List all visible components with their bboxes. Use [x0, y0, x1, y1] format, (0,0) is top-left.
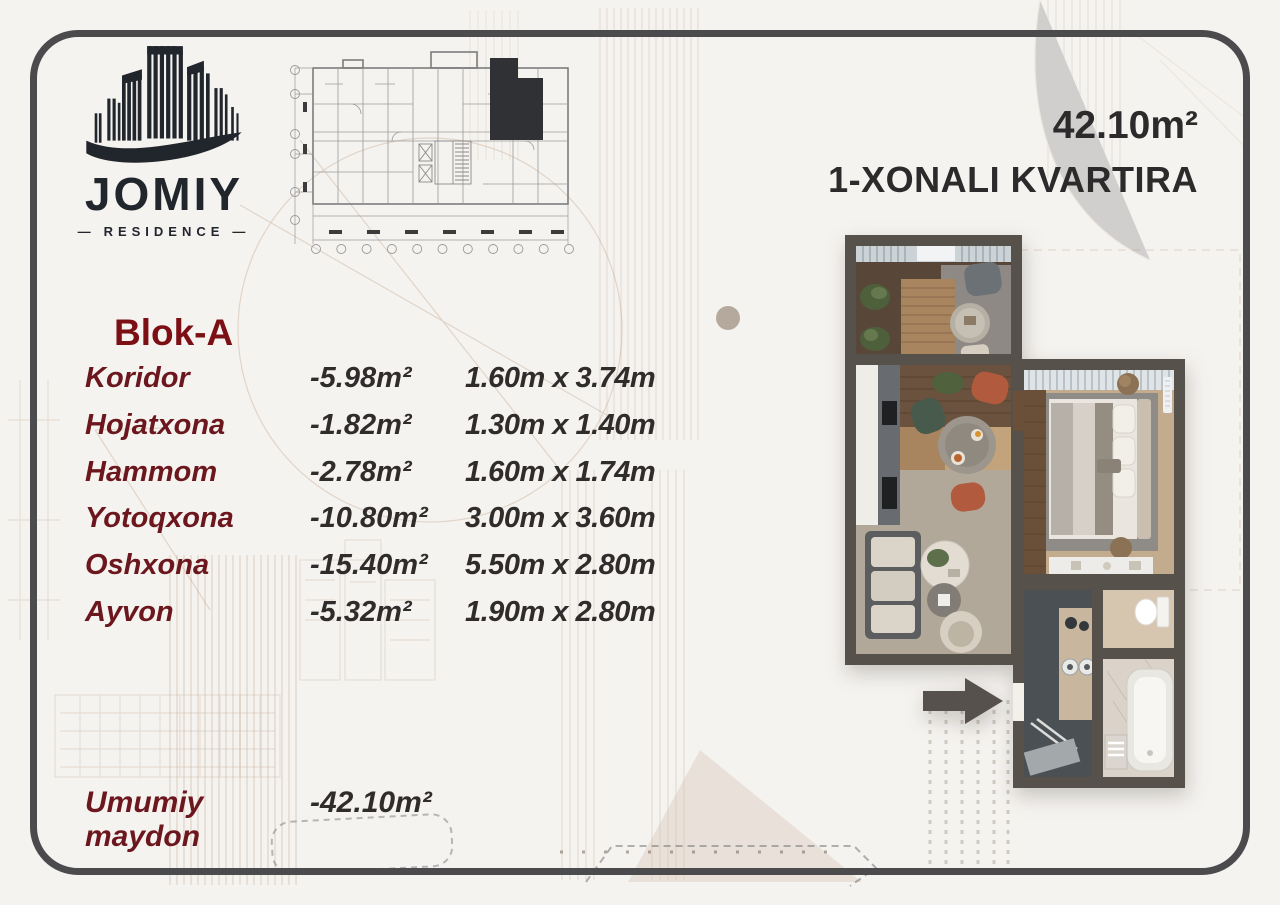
- bath-section: [1013, 585, 1180, 783]
- room-area: -5.32m²: [310, 596, 465, 629]
- room-name: Koridor: [85, 362, 310, 395]
- total-value: -42.10m²: [310, 786, 432, 820]
- table-row: Koridor -5.98m² 1.60m x 3.74m: [85, 362, 655, 409]
- pillow: [1113, 469, 1135, 497]
- bedroom-stool: [1110, 537, 1132, 559]
- bedroom-curtains: [1029, 370, 1169, 390]
- balcony-room: [851, 241, 1018, 363]
- highlighted-unit: [490, 58, 543, 140]
- bedroom-ac-unit: [1163, 377, 1172, 413]
- entrance-door-opening: [1013, 683, 1024, 721]
- brand-name: JOMIY: [56, 171, 272, 217]
- header-block: 42.10m² 1-XONALI KVARTIRA: [828, 106, 1198, 198]
- room-area: -5.98m²: [310, 362, 465, 395]
- rooms-table: Koridor -5.98m² 1.60m x 3.74m Hojatxona …: [85, 362, 655, 643]
- kitchen-cabinet: [856, 365, 878, 525]
- total-row: Umumiy maydon -42.10m²: [85, 786, 432, 854]
- coffee-table-plant: [927, 549, 949, 567]
- table-row: Yotoqxona -10.80m² 3.00m x 3.60m: [85, 502, 655, 549]
- room-dimensions: 1.90m x 2.80m: [465, 596, 655, 629]
- kitchen-living-room: [851, 354, 1017, 660]
- building-floorplan-sketch: [283, 44, 603, 261]
- balcony-skylight: [917, 246, 955, 261]
- kitchen-appliance: [882, 477, 897, 509]
- block-label: Blok-A: [114, 312, 233, 354]
- room-dimensions: 1.60m x 3.74m: [465, 362, 655, 395]
- room-name: Hammom: [85, 456, 310, 489]
- brand-logo: JOMIY — RESIDENCE —: [56, 44, 272, 239]
- tagline-dash-left: —: [78, 224, 96, 239]
- pillow: [1113, 405, 1135, 433]
- building-skyline-icon: [80, 44, 248, 170]
- table-row: Ayvon -5.32m² 1.90m x 2.80m: [85, 596, 655, 643]
- room-name: Yotoqxona: [85, 502, 310, 535]
- room-dimensions: 5.50m x 2.80m: [465, 549, 655, 582]
- room-name: Ayvon: [85, 596, 310, 629]
- apartment-area: 42.10m²: [828, 106, 1198, 145]
- room-dimensions: 3.00m x 3.60m: [465, 502, 655, 535]
- room-area: -10.80m²: [310, 502, 465, 535]
- balcony-chair: [963, 261, 1003, 298]
- room-dimensions: 1.60m x 1.74m: [465, 456, 655, 489]
- toilet-tank: [1157, 597, 1169, 627]
- bath-side-table: [1105, 735, 1127, 769]
- brand-tagline: — RESIDENCE —: [56, 224, 272, 239]
- tagline-dash-right: —: [232, 224, 250, 239]
- total-label: Umumiy maydon: [85, 786, 310, 854]
- table-row: Hojatxona -1.82m² 1.30m x 1.40m: [85, 409, 655, 456]
- apartment-title: 1-XONALI KVARTIRA: [828, 162, 1198, 198]
- room-area: -15.40m²: [310, 549, 465, 582]
- tagline-text: RESIDENCE: [104, 224, 225, 239]
- toilet: [1135, 599, 1157, 625]
- entrance-arrow-icon: [923, 678, 1003, 724]
- room-name: Hojatxona: [85, 409, 310, 442]
- table-row: Oshxona -15.40m² 5.50m x 2.80m: [85, 549, 655, 596]
- table-row: Hammom -2.78m² 1.60m x 1.74m: [85, 456, 655, 503]
- flyer-canvas: JOMIY — RESIDENCE —: [0, 0, 1280, 905]
- bed: [1049, 399, 1151, 539]
- apartment-3d-plan: [845, 231, 1197, 798]
- bedroom: [1013, 365, 1180, 580]
- coffee-table: [921, 541, 969, 589]
- kitchen-plant: [932, 372, 964, 394]
- room-area: -2.78m²: [310, 456, 465, 489]
- room-dimensions: 1.30m x 1.40m: [465, 409, 655, 442]
- room-name: Oshxona: [85, 549, 310, 582]
- room-area: -1.82m²: [310, 409, 465, 442]
- kitchen-appliance: [882, 401, 897, 425]
